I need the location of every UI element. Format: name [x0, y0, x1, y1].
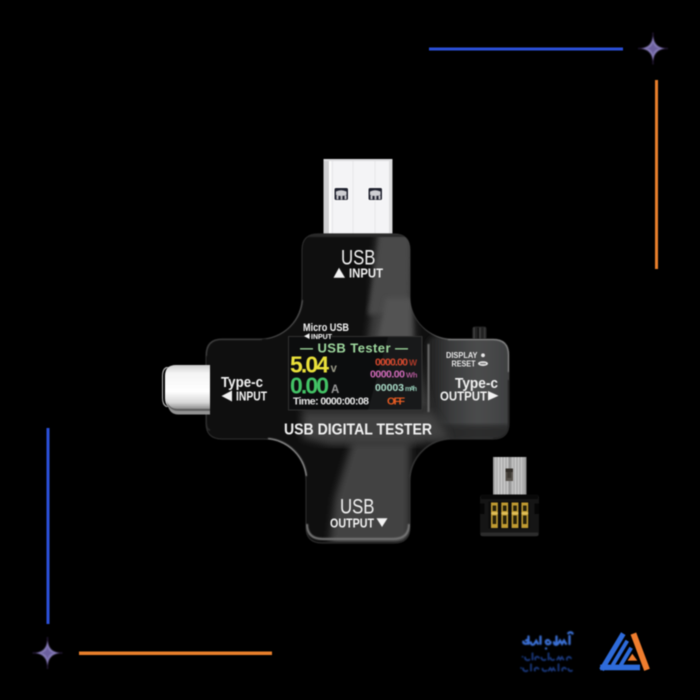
svg-text:Time: 0000:00:08: Time: 0000:00:08 — [293, 396, 369, 408]
svg-text:W: W — [409, 358, 418, 368]
svg-text:OUTPUT: OUTPUT — [440, 390, 487, 404]
svg-text:Micro USB: Micro USB — [303, 322, 349, 334]
svg-text:INPUT: INPUT — [311, 334, 333, 341]
svg-text:Wh: Wh — [406, 371, 418, 380]
svg-text:INPUT: INPUT — [236, 390, 267, 404]
svg-text:A: A — [331, 384, 339, 396]
svg-text:USB DIGITAL TESTER: USB DIGITAL TESTER — [284, 422, 432, 439]
svg-text:Type-c: Type-c — [221, 374, 263, 391]
svg-text:USB: USB — [340, 496, 375, 519]
svg-text:v: v — [331, 363, 338, 375]
svg-text:RESET: RESET — [452, 359, 476, 368]
svg-text:0000.00: 0000.00 — [375, 357, 408, 369]
svg-text:OFF: OFF — [387, 396, 406, 408]
svg-text:mAh: mAh — [405, 386, 417, 393]
svg-text:INPUT: INPUT — [349, 266, 383, 281]
svg-text:0000.00: 0000.00 — [370, 369, 405, 381]
svg-text:OUTPUT: OUTPUT — [330, 517, 374, 531]
svg-text:00003: 00003 — [375, 382, 404, 394]
